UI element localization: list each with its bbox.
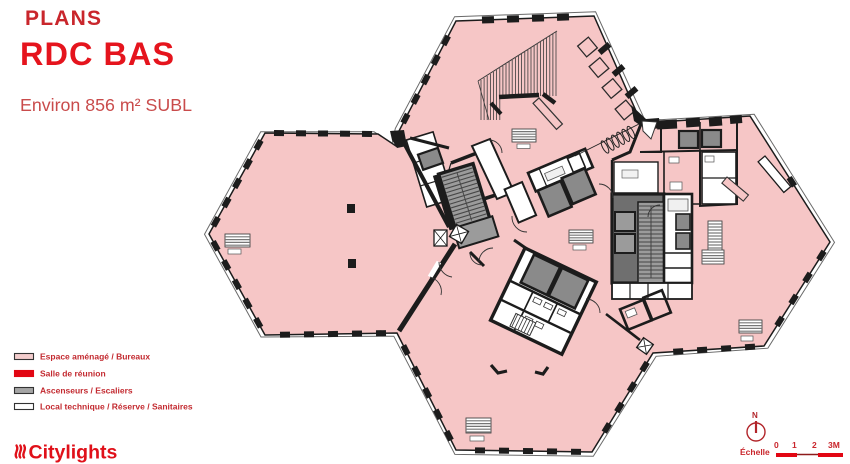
- svg-text:Ascenseurs / Escaliers: Ascenseurs / Escaliers: [40, 386, 133, 396]
- svg-text:3M: 3M: [828, 440, 840, 450]
- svg-text:0: 0: [774, 440, 779, 450]
- svg-text:Environ 856 m² SUBL: Environ 856 m² SUBL: [20, 95, 192, 115]
- svg-text:2: 2: [812, 440, 817, 450]
- svg-text:Salle de réunion: Salle de réunion: [40, 369, 106, 379]
- svg-text:PLANS: PLANS: [25, 7, 102, 30]
- svg-text:Échelle: Échelle: [740, 447, 770, 457]
- svg-text:Local technique / Réserve / Sa: Local technique / Réserve / Sanitaires: [40, 402, 193, 412]
- svg-text:Citylights: Citylights: [29, 442, 118, 464]
- svg-text:RDC BAS: RDC BAS: [20, 36, 175, 72]
- svg-text:Espace aménagé / Bureaux: Espace aménagé / Bureaux: [40, 352, 150, 362]
- svg-text:1: 1: [792, 440, 797, 450]
- svg-text:N: N: [752, 411, 758, 420]
